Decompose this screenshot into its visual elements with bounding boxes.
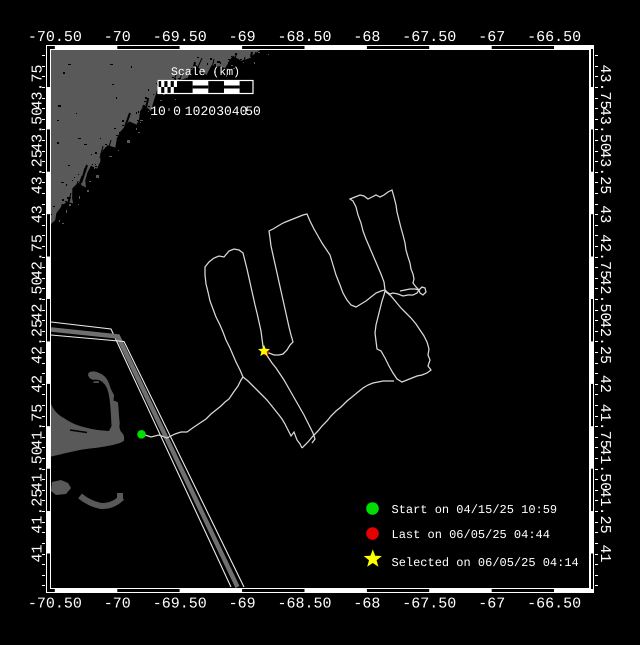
svg-text:-68: -68 <box>353 29 380 46</box>
svg-text:-68.50: -68.50 <box>277 29 331 46</box>
svg-text:Scale (km): Scale (km) <box>171 66 240 79</box>
svg-text:41.50: 41.50 <box>596 446 613 491</box>
svg-text:43: 43 <box>596 205 613 223</box>
svg-text:43.25: 43.25 <box>596 149 613 194</box>
svg-text:20: 20 <box>200 104 216 119</box>
svg-text:-69: -69 <box>229 596 256 613</box>
svg-text:30: 30 <box>216 104 232 119</box>
svg-text:42.75: 42.75 <box>30 234 47 279</box>
svg-text:-69.50: -69.50 <box>153 596 207 613</box>
svg-text:10: 10 <box>185 104 201 119</box>
svg-text:-68.50: -68.50 <box>277 596 331 613</box>
svg-text:-70: -70 <box>104 596 131 613</box>
svg-text:41.50: 41.50 <box>30 446 47 491</box>
svg-text:41.25: 41.25 <box>596 489 613 534</box>
svg-text:-67: -67 <box>478 29 505 46</box>
svg-text:41.25: 41.25 <box>30 489 47 534</box>
svg-text:50: 50 <box>245 104 261 119</box>
svg-text:0: 0 <box>173 104 181 119</box>
svg-text:-68: -68 <box>353 596 380 613</box>
svg-text:-70.50: -70.50 <box>28 29 82 46</box>
svg-text:41: 41 <box>30 544 47 562</box>
svg-text:Last on 06/05/25 04:44: Last on 06/05/25 04:44 <box>392 528 550 542</box>
svg-text:-70.50: -70.50 <box>28 596 82 613</box>
svg-text:42: 42 <box>30 375 47 393</box>
svg-text:43.75: 43.75 <box>596 64 613 109</box>
svg-text:42.50: 42.50 <box>596 276 613 321</box>
svg-text:42.25: 42.25 <box>30 319 47 364</box>
svg-text:42.50: 42.50 <box>30 276 47 321</box>
svg-text:42.25: 42.25 <box>596 319 613 364</box>
svg-text:-69: -69 <box>229 29 256 46</box>
svg-text:43.75: 43.75 <box>30 64 47 109</box>
svg-text:-67: -67 <box>478 596 505 613</box>
svg-text:43.50: 43.50 <box>30 107 47 152</box>
svg-text:-67.50: -67.50 <box>402 596 456 613</box>
svg-text:43: 43 <box>30 205 47 223</box>
svg-text:42.75: 42.75 <box>596 234 613 279</box>
svg-text:-67.50: -67.50 <box>402 29 456 46</box>
svg-text:-69.50: -69.50 <box>153 29 207 46</box>
svg-text:43.50: 43.50 <box>596 107 613 152</box>
svg-text:-66.50: -66.50 <box>527 29 581 46</box>
svg-text:43.25: 43.25 <box>30 149 47 194</box>
svg-text:41.75: 41.75 <box>30 404 47 449</box>
svg-text:Selected on 06/05/25 04:14: Selected on 06/05/25 04:14 <box>392 556 579 570</box>
svg-text:Start on 04/15/25 10:59: Start on 04/15/25 10:59 <box>392 503 558 517</box>
svg-text:41.75: 41.75 <box>596 404 613 449</box>
svg-text:10: 10 <box>150 104 166 119</box>
svg-text:41: 41 <box>596 544 613 562</box>
svg-text:-70: -70 <box>104 29 131 46</box>
svg-text:-66.50: -66.50 <box>527 596 581 613</box>
svg-text:42: 42 <box>596 375 613 393</box>
